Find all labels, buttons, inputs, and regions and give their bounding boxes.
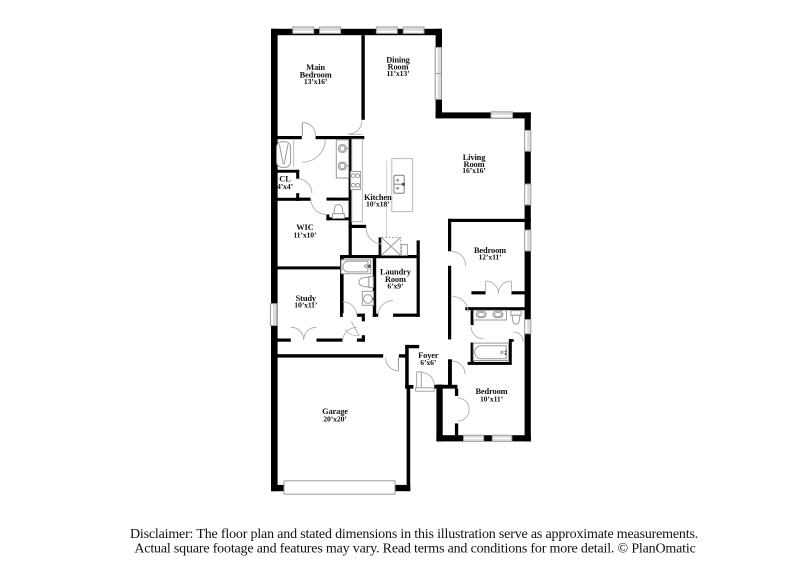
svg-text:12’x11’: 12’x11’ (478, 252, 502, 261)
svg-text:10’x18’: 10’x18’ (366, 200, 390, 209)
svg-text:6’x9’: 6’x9’ (387, 281, 404, 290)
svg-text:16’x16’: 16’x16’ (462, 166, 486, 175)
svg-text:20’x20’: 20’x20’ (323, 414, 347, 423)
svg-text:10’x11’: 10’x11’ (294, 301, 318, 310)
svg-text:6’x6’: 6’x6’ (420, 358, 437, 367)
svg-text:Actual square footage and feat: Actual square footage and features may v… (134, 541, 695, 556)
svg-text:11’x13’: 11’x13’ (386, 69, 410, 78)
svg-text:11’x10’: 11’x10’ (293, 230, 317, 239)
svg-text:Disclaimer: The floor plan and: Disclaimer: The floor plan and stated di… (130, 527, 698, 542)
svg-text:10’x11’: 10’x11’ (480, 394, 504, 403)
svg-text:13’x16’: 13’x16’ (304, 77, 328, 86)
svg-text:4’x4’: 4’x4’ (277, 182, 294, 191)
